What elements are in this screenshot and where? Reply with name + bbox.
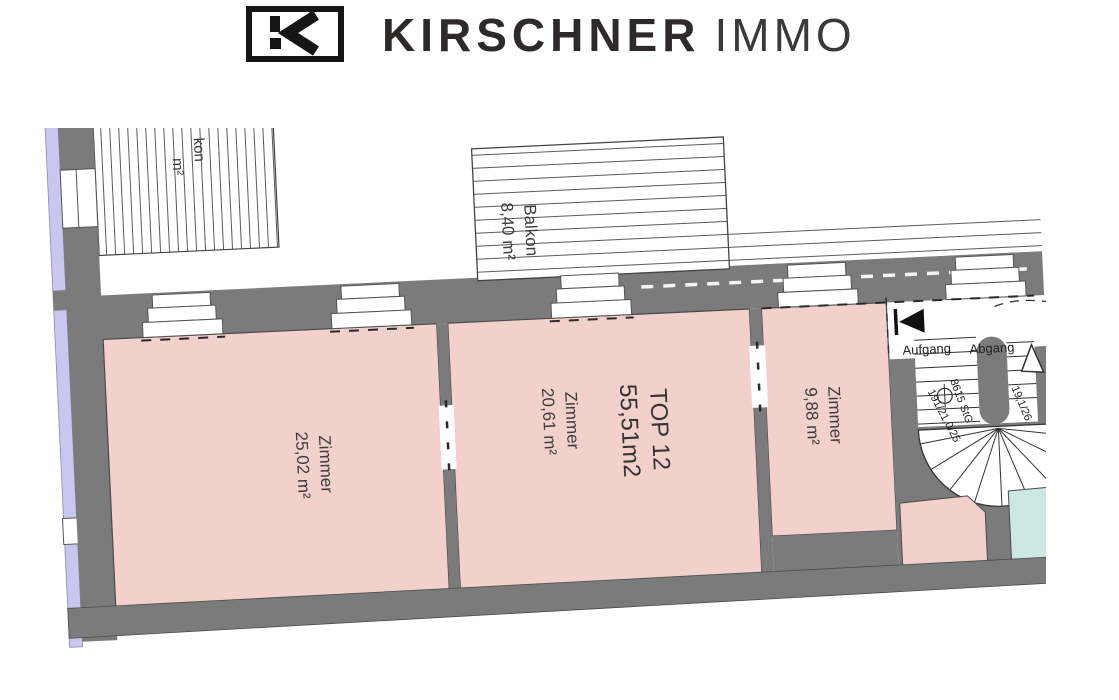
door-steps-balcony <box>550 273 632 319</box>
edge-window <box>63 518 79 545</box>
floorplan: kon m² Balkon 8,40 m² Zimmer 25,02 m² TO… <box>18 128 1046 663</box>
kirschner-k-mark-icon <box>252 12 338 56</box>
stair-up-label: Aufgang <box>902 341 951 358</box>
page: KIRSCHNERIMMO <box>0 0 1119 700</box>
brand-title: KIRSCHNERIMMO <box>382 8 856 62</box>
room-right-name: Zimmer <box>824 386 846 445</box>
door-steps-top-right <box>944 254 1026 300</box>
brand-secondary: IMMO <box>714 9 855 61</box>
stair-cutline-dashed <box>994 299 1046 309</box>
room-right-area: 9,88 m² <box>801 387 823 446</box>
door-steps-left-2 <box>330 283 412 329</box>
room-middle-name: Zimmer <box>561 391 583 450</box>
brand-primary: KIRSCHNER <box>382 9 700 61</box>
balcony-area: 8,40 m² <box>497 202 519 261</box>
room-middle-area: 20,61 m² <box>538 388 560 456</box>
edge-strip-wall-block <box>53 290 67 311</box>
stair-down-label: Abgang <box>969 340 1014 357</box>
unit-label-line2: 55,51m2 <box>614 383 645 478</box>
door-steps-right-room <box>776 262 858 308</box>
floorplan-drawing: kon m² Balkon 8,40 m² Zimmer 25,02 m² TO… <box>18 128 1046 663</box>
room-left-name: Zimmer <box>315 435 337 494</box>
stair-down-spec: 19,1/26 <box>1009 384 1034 422</box>
window-left <box>60 169 98 229</box>
kirschner-logo <box>246 6 344 62</box>
room-left <box>103 324 449 608</box>
room-middle <box>448 309 762 592</box>
room-neighbor-teal <box>1008 487 1046 563</box>
room-bottom-right-pink <box>900 495 988 569</box>
balcony-partial-area: m² <box>169 158 187 176</box>
balcony-top-left <box>92 128 279 256</box>
floorplan-viewport: kon m² Balkon 8,40 m² Zimmer 25,02 m² TO… <box>18 128 1046 663</box>
direction-arrow-icon <box>894 308 925 335</box>
room-left-area: 25,02 m² <box>292 431 314 499</box>
balcony-partial-name: kon <box>190 137 208 162</box>
unit-label-line1: TOP 12 <box>644 388 675 471</box>
door-steps-left-1 <box>141 292 223 338</box>
balcony-name: Balkon <box>520 204 541 257</box>
